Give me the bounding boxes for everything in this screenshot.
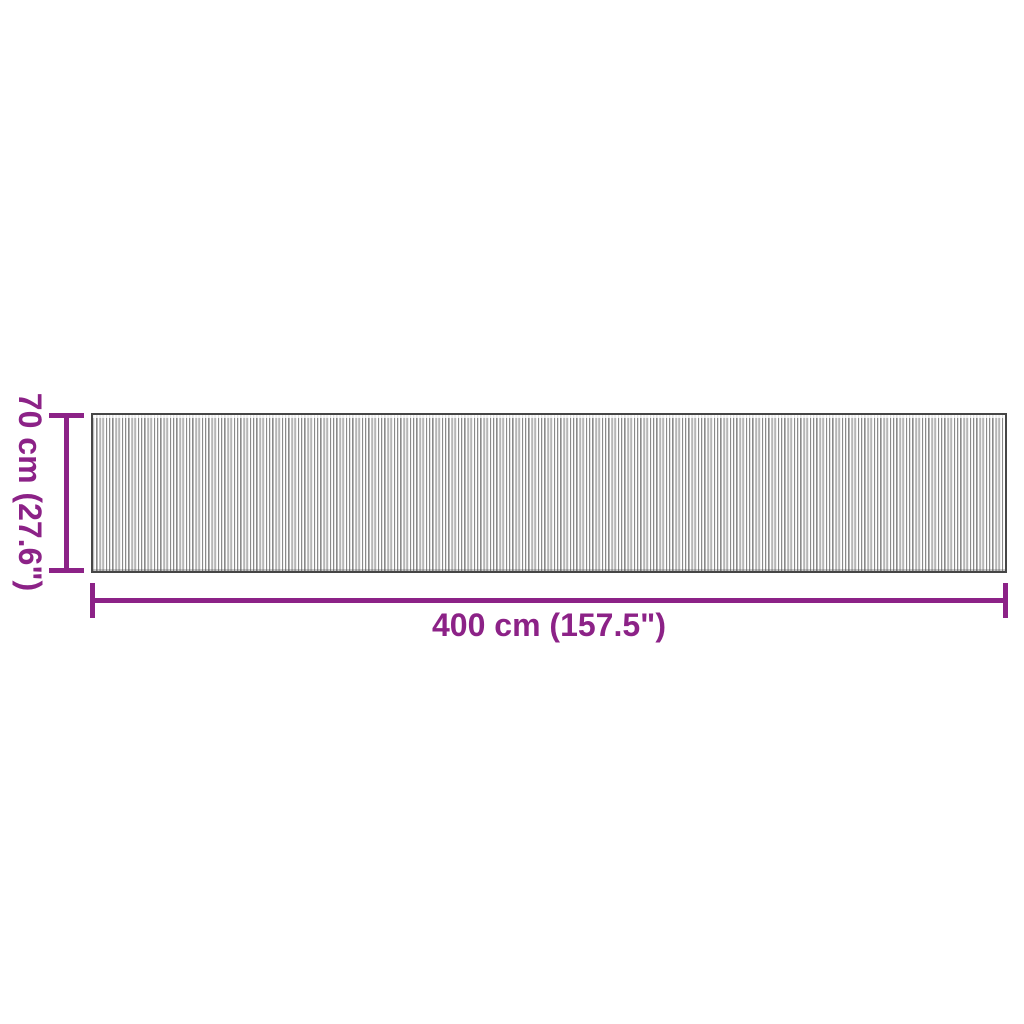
height-dimension-label: 70 cm (27.6") — [13, 384, 47, 600]
width-dimension-label: 400 cm (157.5") — [91, 607, 1007, 644]
height-dimension-cap-bottom — [49, 568, 84, 573]
height-dimension-cap-top — [49, 413, 84, 418]
width-dimension-line — [92, 598, 1006, 603]
rug-image — [91, 413, 1007, 573]
height-dimension-line — [64, 413, 69, 573]
dimension-diagram: 70 cm (27.6") 400 cm (157.5") — [0, 0, 1024, 1024]
